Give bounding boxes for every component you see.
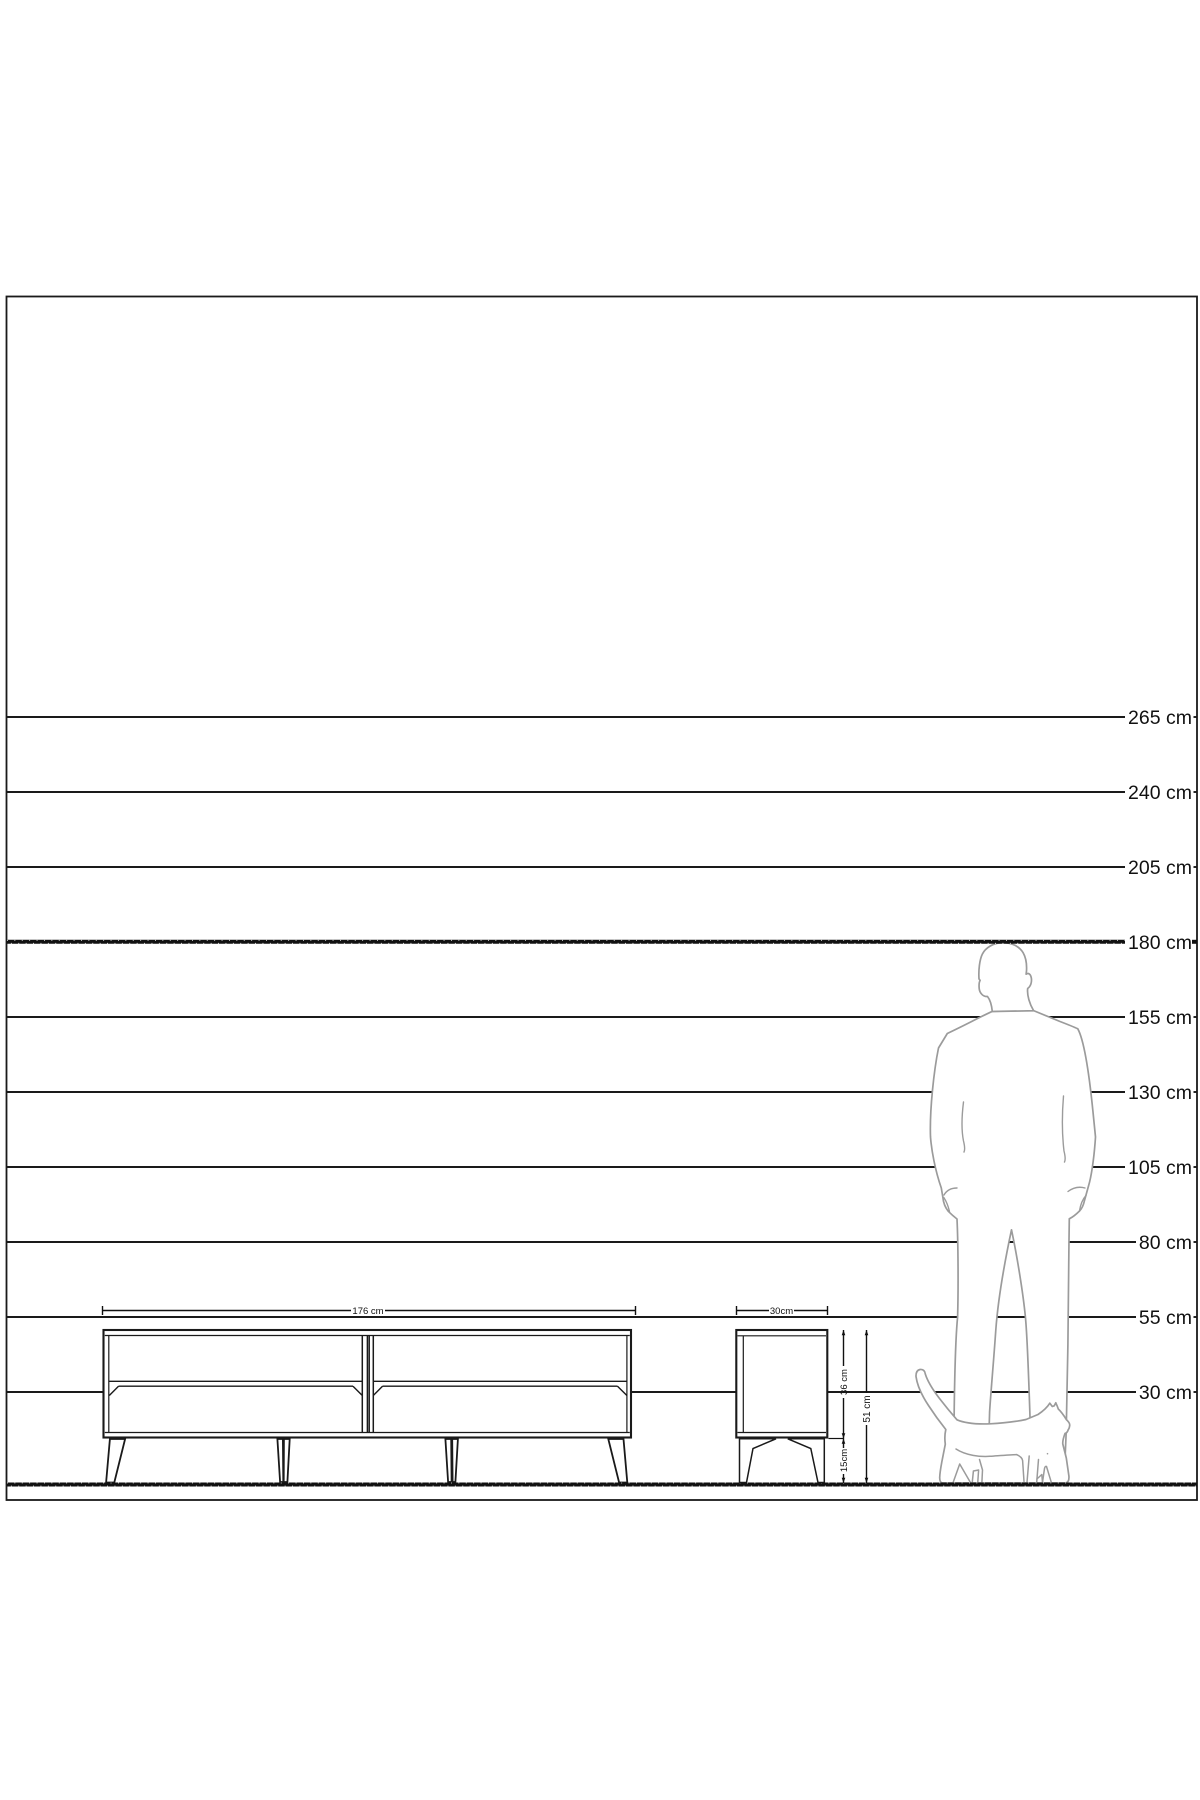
svg-text:265 cm: 265 cm	[1128, 707, 1192, 729]
svg-text:240 cm: 240 cm	[1128, 782, 1192, 804]
svg-text:105 cm: 105 cm	[1128, 1157, 1192, 1179]
svg-text:176 cm: 176 cm	[352, 1306, 383, 1317]
svg-text:155 cm: 155 cm	[1128, 1007, 1192, 1029]
svg-text:30cm: 30cm	[770, 1306, 793, 1317]
svg-text:51 cm: 51 cm	[862, 1395, 873, 1422]
svg-text:15cm: 15cm	[839, 1449, 850, 1472]
svg-text:205 cm: 205 cm	[1128, 857, 1192, 879]
svg-text:180 cm: 180 cm	[1128, 932, 1192, 954]
svg-text:30 cm: 30 cm	[1139, 1382, 1192, 1404]
svg-text:80 cm: 80 cm	[1139, 1232, 1192, 1254]
svg-text:55 cm: 55 cm	[1139, 1307, 1192, 1329]
svg-text:36 cm: 36 cm	[839, 1369, 850, 1395]
svg-text:130 cm: 130 cm	[1128, 1082, 1192, 1104]
